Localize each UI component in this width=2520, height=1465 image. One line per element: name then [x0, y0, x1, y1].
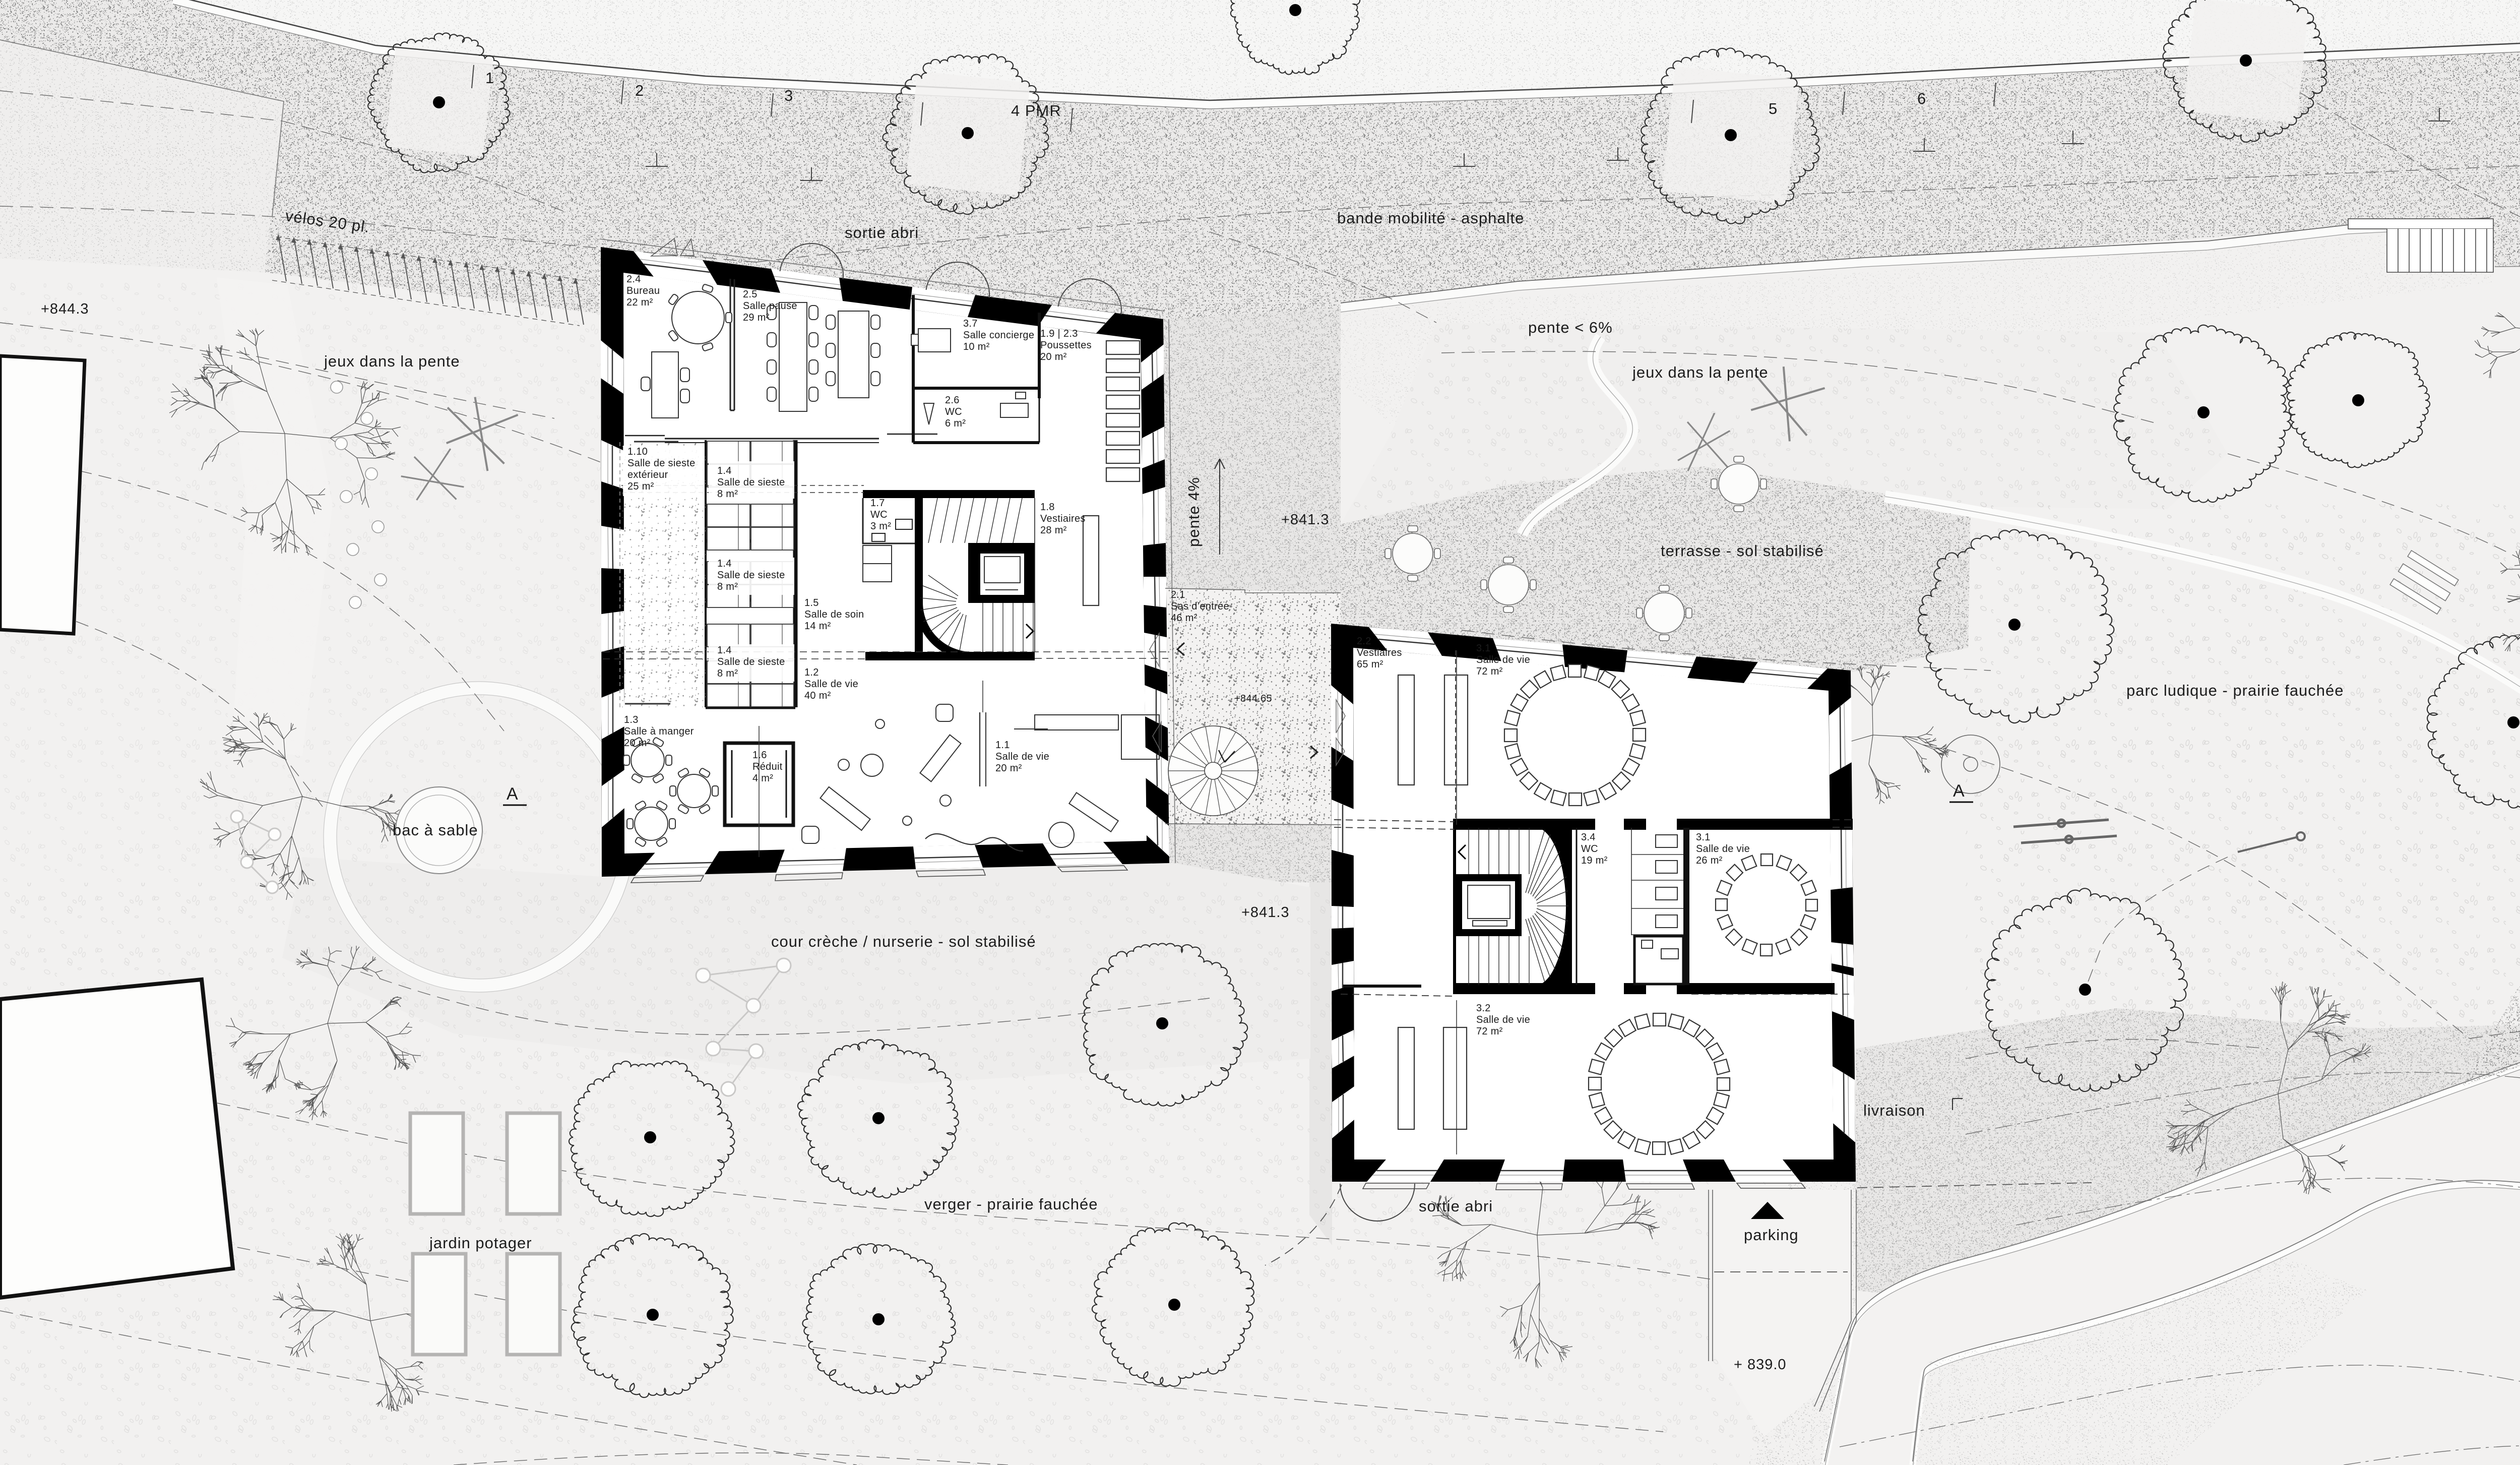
svg-text:4 PMR: 4 PMR	[1011, 102, 1061, 119]
svg-text:livraison: livraison	[1863, 1102, 1925, 1119]
svg-text:+844.65: +844.65	[1234, 693, 1272, 704]
svg-text:+841.3: +841.3	[1281, 512, 1330, 528]
svg-text:bande mobilité - asphalte: bande mobilité - asphalte	[1337, 209, 1524, 227]
svg-text:6: 6	[1917, 90, 1926, 107]
svg-text:jeux dans la pente: jeux dans la pente	[324, 352, 460, 370]
svg-text:A: A	[507, 784, 518, 804]
svg-text:jeux dans la pente: jeux dans la pente	[1632, 363, 1769, 381]
svg-text:3: 3	[784, 87, 793, 104]
svg-text:5: 5	[1769, 100, 1778, 117]
svg-text:parc ludique - prairie fauchée: parc ludique - prairie fauchée	[2126, 682, 2344, 699]
svg-text:parking: parking	[1744, 1226, 1799, 1244]
svg-text:terrasse - sol stabilisé: terrasse - sol stabilisé	[1661, 542, 1824, 560]
svg-text:1: 1	[485, 69, 494, 87]
svg-text:+844.3: +844.3	[41, 301, 89, 317]
svg-text:jardin potager: jardin potager	[429, 1234, 532, 1252]
svg-text:2: 2	[635, 82, 644, 99]
svg-text:A: A	[1953, 781, 1965, 801]
svg-text:bac à sable: bac à sable	[393, 821, 478, 839]
svg-text:sortie abri: sortie abri	[1419, 1197, 1493, 1215]
svg-text:pente 4%: pente 4%	[1185, 477, 1203, 547]
svg-text:+841.3: +841.3	[1241, 904, 1290, 921]
svg-text:pente < 6%: pente < 6%	[1528, 319, 1613, 336]
svg-text:cour crèche / nurserie - sol s: cour crèche / nurserie - sol stabilisé	[771, 933, 1036, 950]
svg-text:sortie abri: sortie abri	[845, 224, 919, 241]
svg-text:verger - prairie fauchée: verger - prairie fauchée	[924, 1195, 1098, 1213]
svg-text:+ 839.0: + 839.0	[1734, 1357, 1787, 1373]
